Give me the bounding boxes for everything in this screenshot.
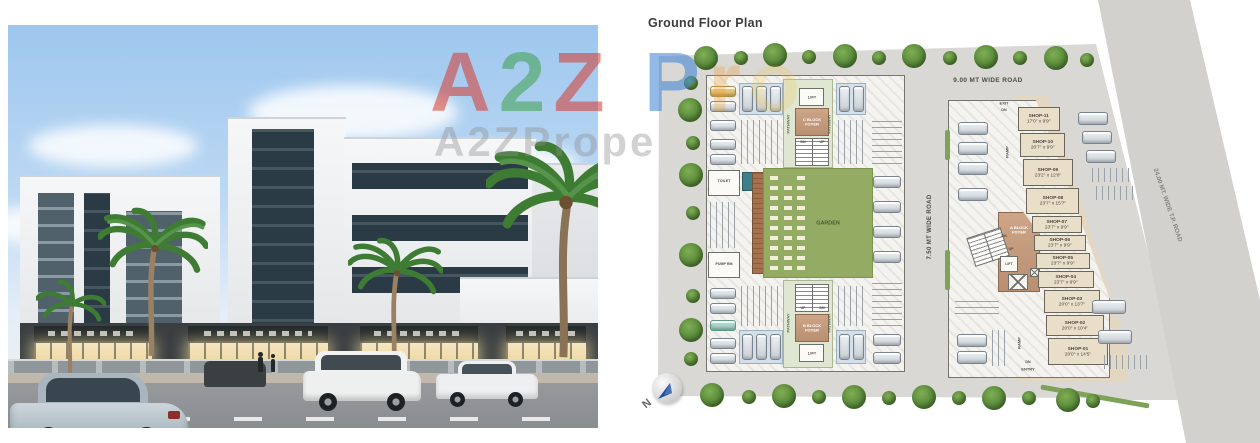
tree-icon (772, 384, 796, 408)
tree-icon (812, 390, 826, 404)
tree-icon (679, 163, 703, 187)
car-icon (873, 251, 901, 263)
entry-label: ENTRY (1021, 367, 1034, 372)
cloud (28, 125, 198, 167)
tree-icon (679, 243, 703, 267)
tree-icon (974, 45, 998, 69)
exit-label: EXIT (1000, 101, 1009, 106)
bike-parking (1096, 186, 1136, 200)
tree-icon (952, 391, 966, 405)
parking-stalls (992, 330, 1010, 366)
hedge (945, 130, 950, 160)
watermark-letter: 2 (499, 35, 554, 129)
ramp-label: RAMP (1017, 337, 1022, 349)
car-icon (710, 154, 736, 165)
stepping-stones (770, 176, 778, 270)
tree-icon (982, 386, 1006, 410)
garden-label: GARDEN (816, 220, 840, 226)
a-foyer-label: A BLOCK FOYER (1004, 225, 1034, 234)
car-icon (957, 351, 987, 364)
tree-icon (686, 289, 700, 303)
tree-icon (1013, 51, 1027, 65)
watermark-letter: r (708, 35, 749, 129)
watermark-letter: o (749, 35, 808, 129)
car-icon (873, 334, 901, 346)
car-icon (710, 353, 736, 364)
car-icon (873, 226, 901, 238)
parking-stalls (955, 296, 999, 314)
tree-icon (1044, 46, 1068, 70)
dn-label: DN (1001, 108, 1006, 112)
watermark-logo: A2Z Pro (430, 40, 808, 124)
car-icon (958, 162, 988, 175)
pathway-label: PATHWAY (827, 313, 832, 332)
white-suv (303, 351, 423, 415)
page: A2Z Pro A2ZPrope Ground Floor Plan 24.00… (0, 0, 1260, 443)
parking-stalls (872, 282, 902, 326)
parking-stalls (710, 202, 740, 248)
watermark-letter: Z (553, 35, 612, 129)
car-icon (958, 188, 988, 201)
tree-icon (872, 51, 886, 65)
tree-icon (1080, 53, 1094, 67)
watermark-letter: P (644, 35, 708, 129)
north-arrow-icon (650, 371, 686, 407)
tree-icon (1056, 388, 1080, 412)
shop-unit: SHOP-0723'7" x 9'9" (1032, 216, 1082, 233)
car-icon (957, 334, 987, 347)
plan-title: Ground Floor Plan (648, 16, 763, 30)
person-silhouette (271, 359, 275, 372)
shop-unit: SHOP-0220'0" x 10'4" (1046, 315, 1104, 336)
bike-parking (1092, 168, 1132, 182)
parking-stalls (872, 120, 902, 164)
car-icon (1082, 131, 1112, 144)
hedge (945, 250, 950, 290)
car-icon (839, 86, 850, 112)
car-icon (958, 122, 988, 135)
watermark-letter: A (430, 35, 499, 129)
palm-tree-icon (348, 235, 443, 370)
car-icon (958, 142, 988, 155)
car-icon (710, 139, 736, 150)
dn-label: DN (1025, 360, 1030, 364)
car-icon (873, 176, 901, 188)
tree-icon (912, 385, 936, 409)
tree-icon (842, 385, 866, 409)
shop-unit: SHOP-0623'7" x 9'9" (1034, 235, 1086, 251)
top-road-label: 9.00 MT WIDE ROAD (953, 76, 1022, 83)
tree-icon (833, 44, 857, 68)
person-silhouette (258, 352, 263, 357)
up-label: UP (819, 140, 824, 144)
tree-icon (679, 318, 703, 342)
palm-tree-icon (486, 133, 598, 368)
palm-tree-icon (36, 280, 106, 375)
tree-icon (1086, 394, 1100, 408)
service-shaft (1008, 274, 1028, 290)
tree-icon (902, 44, 926, 68)
dn-label: DN (800, 140, 805, 144)
car-icon (710, 303, 736, 314)
car-icon (756, 334, 767, 360)
shop-unit: SHOP-0523'7" x 9'9" (1036, 253, 1090, 269)
car-icon (710, 320, 736, 331)
parking-stalls (741, 286, 783, 326)
car-icon (1086, 150, 1116, 163)
watermark-text: A2ZPrope (434, 118, 656, 166)
lift-label: LIFT (1005, 262, 1013, 266)
ramp-label: RAMP (1005, 146, 1010, 158)
car-icon (873, 352, 901, 364)
lift-label: LIFT (808, 351, 816, 356)
shop-unit: SHOP-0823'7" x 15'7" (1026, 188, 1079, 214)
foreground-hatchback (10, 371, 192, 428)
tree-icon (742, 390, 756, 404)
up-label: UP (1008, 247, 1013, 251)
toilet-label: TOILET (718, 179, 731, 183)
shop-unit: SHOP-1117'0" x 9'9" (1018, 107, 1060, 131)
dn-label: DN (819, 306, 824, 310)
car-icon (853, 334, 864, 360)
parked-car (204, 361, 266, 387)
shop-unit: SHOP-1020'7" x 9'9" (1020, 133, 1065, 157)
tree-icon (700, 383, 724, 407)
car-icon (1098, 330, 1132, 344)
pump-room-label: PUMP RM (716, 262, 733, 266)
bike-parking (1104, 355, 1148, 369)
car-icon (710, 288, 736, 299)
lift-label: LIFT (808, 95, 816, 100)
car-icon (770, 334, 781, 360)
tree-icon (1022, 391, 1036, 405)
parking-stalls (838, 286, 866, 326)
white-sedan (436, 361, 540, 413)
pathway-label: PATHWAY (827, 114, 832, 133)
car-icon (1092, 300, 1126, 314)
up-label: UP (800, 306, 805, 310)
car-icon (1078, 112, 1108, 125)
car-icon (839, 334, 850, 360)
stepping-stones (797, 176, 805, 270)
tree-icon (686, 136, 700, 150)
dn-label: DN (1001, 234, 1006, 238)
stepping-stones (784, 180, 792, 270)
pathway-label: PATHWAY (786, 313, 791, 332)
parking-stalls (838, 120, 866, 164)
car-icon (742, 334, 753, 360)
tree-icon (943, 51, 957, 65)
middle-road-label: 7.50 MT WIDE ROAD (926, 194, 933, 259)
shop-unit: SHOP-0423'7" x 9'9" (1038, 271, 1094, 288)
shop-signboard (188, 326, 328, 341)
person-silhouette (258, 357, 263, 372)
person-silhouette (271, 354, 275, 358)
palm-tree-icon (98, 205, 208, 360)
tree-icon (882, 391, 896, 405)
car-icon (853, 86, 864, 112)
tree-icon (684, 352, 698, 366)
car-icon (873, 201, 901, 213)
b-foyer-label: B BLOCK FOYER (797, 323, 827, 332)
shop-unit: SHOP-0923'2" x 12'0" (1023, 159, 1073, 186)
car-icon (710, 338, 736, 349)
tree-icon (686, 206, 700, 220)
